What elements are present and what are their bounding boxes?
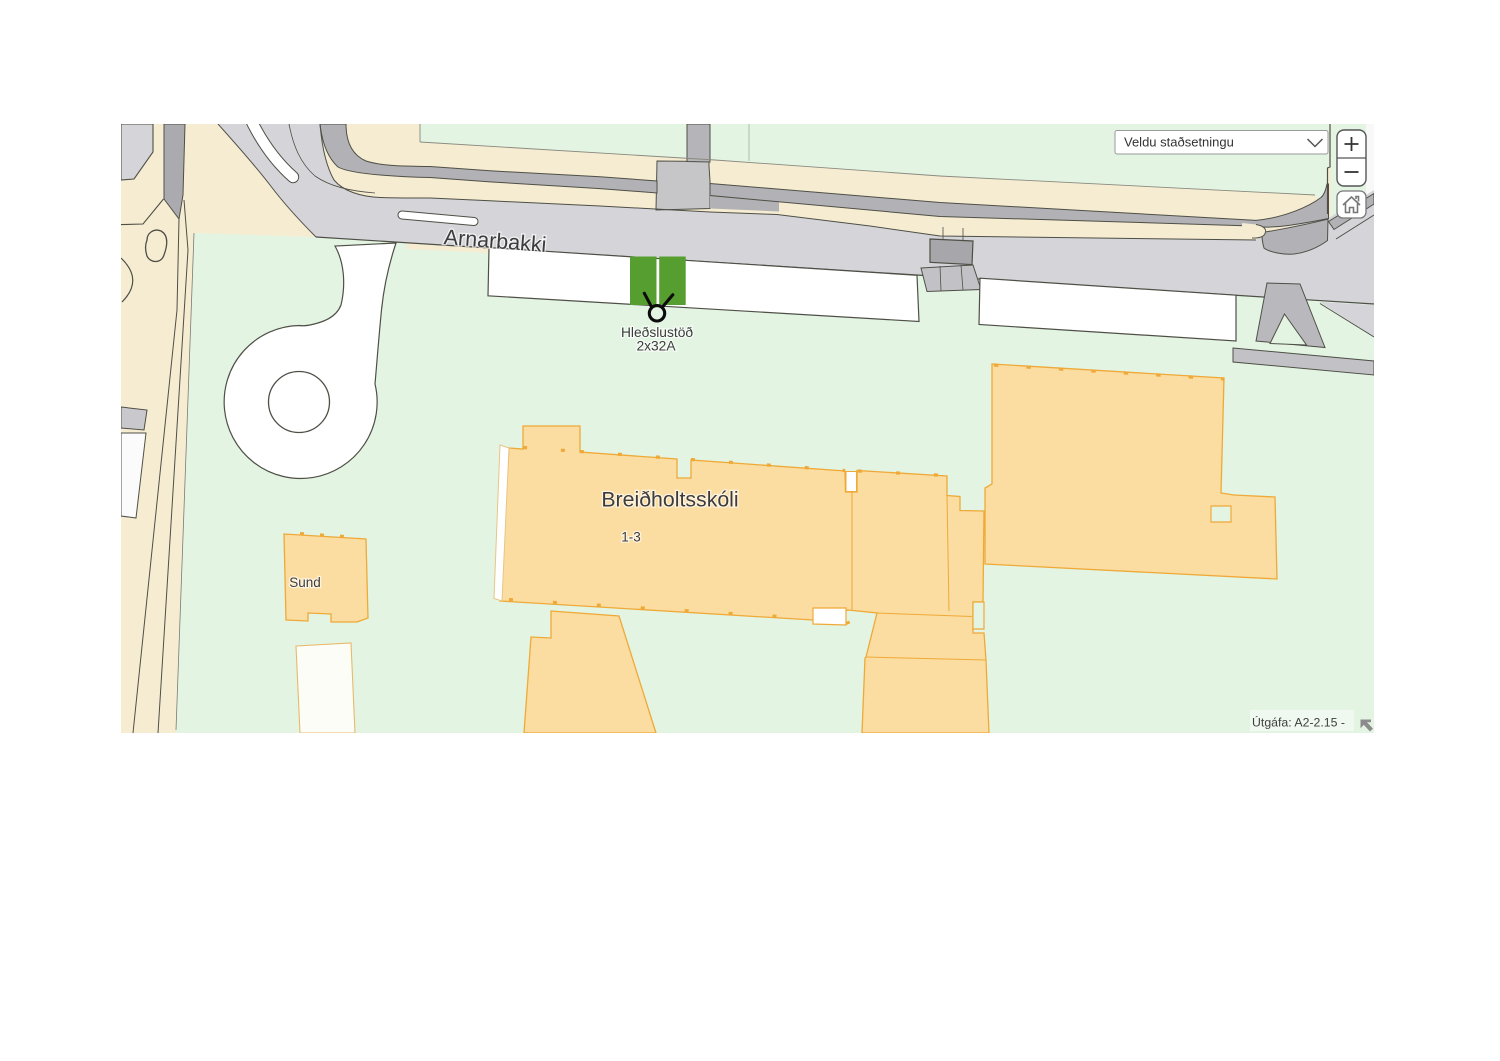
svg-text:Veldu staðsetningu: Veldu staðsetningu xyxy=(1124,135,1234,150)
svg-text:Útgáfa: A2-2.15 -: Útgáfa: A2-2.15 - xyxy=(1252,715,1345,730)
svg-text:2x32A: 2x32A xyxy=(636,339,676,354)
svg-text:Sund: Sund xyxy=(289,575,321,590)
svg-text:1-3: 1-3 xyxy=(621,530,641,545)
svg-text:Breiðholtsskóli: Breiðholtsskóli xyxy=(601,488,738,512)
